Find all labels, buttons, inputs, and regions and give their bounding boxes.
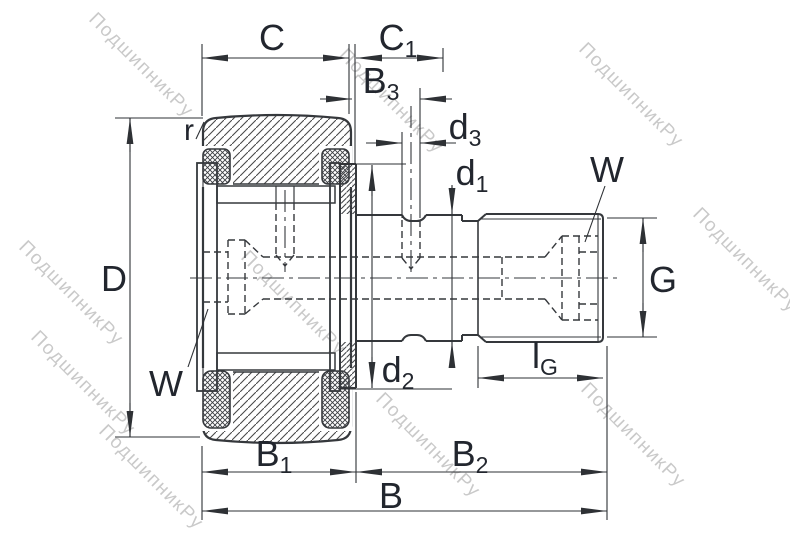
label-B: B	[379, 475, 403, 516]
technical-drawing-page: ПодшипникРу ПодшипникРу ПодшипникРу Подш…	[0, 0, 790, 547]
label-D: D	[101, 258, 127, 299]
label-d3: d3	[449, 106, 482, 151]
label-W-left: W	[149, 363, 183, 404]
label-C1: C1	[379, 17, 418, 62]
watermark: ПодшипникРу	[574, 39, 687, 152]
leader-W-left	[188, 309, 208, 367]
label-B2: B2	[452, 433, 489, 478]
needle-row-bottom	[217, 353, 335, 370]
watermark: ПодшипникРу	[236, 247, 349, 360]
label-W-right: W	[590, 149, 624, 190]
watermark: ПодшипникРу	[576, 379, 689, 492]
watermark: ПодшипникРу	[94, 421, 207, 534]
label-r: r	[184, 114, 194, 147]
label-G: G	[649, 259, 677, 300]
watermark: ПодшипникРу	[84, 9, 197, 122]
label-B3: B3	[363, 60, 400, 105]
label-d2: d2	[382, 349, 415, 394]
side-plate-left	[197, 163, 217, 391]
label-d1: d1	[456, 152, 489, 197]
relief-groove-top	[402, 215, 426, 221]
relief-groove-bottom	[402, 335, 426, 341]
watermark: ПодшипникРу	[688, 204, 790, 317]
stud-collar	[340, 164, 356, 388]
watermark: ПодшипникРу	[26, 327, 139, 440]
dimension-labels: C C1 B3 d3 d1 W D G r W d2 lG B1 B2 B	[101, 17, 677, 516]
label-C: C	[259, 17, 285, 58]
bearing-drawing: ПодшипникРу ПодшипникРу ПодшипникРу Подш…	[0, 0, 790, 547]
